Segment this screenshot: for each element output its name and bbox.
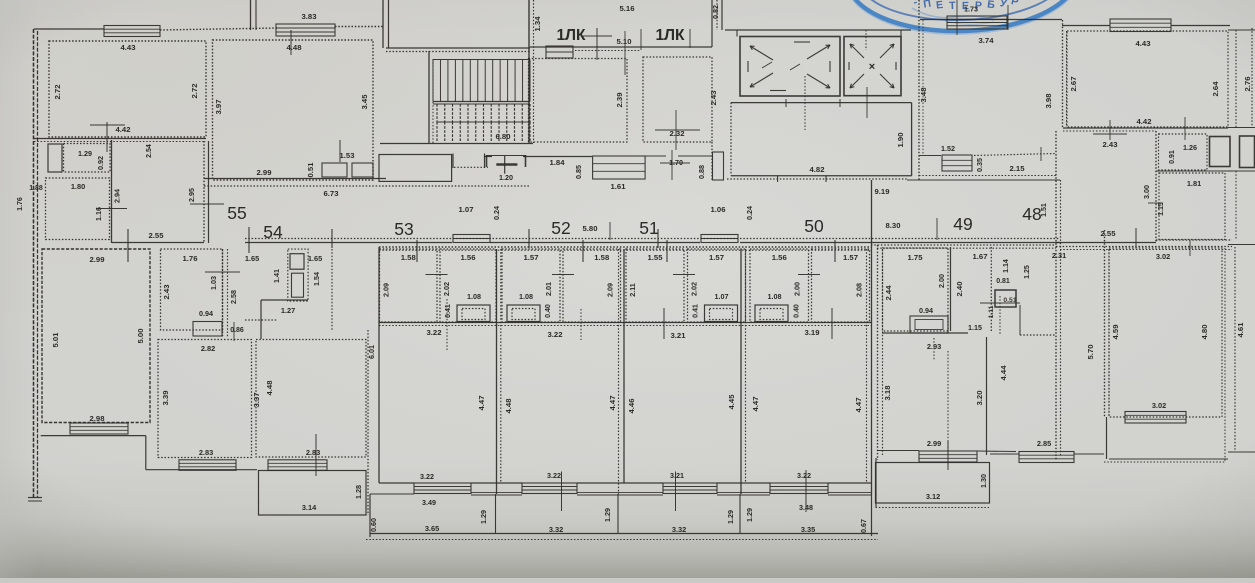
svg-text:1.54: 1.54 [312, 272, 321, 286]
svg-text:54: 54 [263, 222, 283, 242]
svg-text:3.65: 3.65 [425, 524, 439, 533]
svg-text:50: 50 [804, 216, 824, 236]
svg-text:0.81: 0.81 [996, 278, 1010, 285]
svg-text:2.76: 2.76 [1243, 77, 1252, 92]
svg-text:3.74: 3.74 [979, 36, 995, 45]
svg-text:2.39: 2.39 [615, 93, 624, 108]
svg-text:1.29: 1.29 [78, 149, 92, 158]
svg-text:2.99: 2.99 [927, 439, 941, 448]
svg-text:4.61: 4.61 [1236, 322, 1245, 338]
svg-text:1.81: 1.81 [1187, 179, 1201, 188]
svg-text:3.45: 3.45 [360, 94, 369, 110]
svg-text:6.01: 6.01 [367, 345, 376, 359]
svg-text:1.07: 1.07 [459, 205, 474, 214]
svg-text:0.88: 0.88 [697, 165, 706, 179]
svg-text:3.02: 3.02 [1152, 401, 1166, 410]
svg-text:2.99: 2.99 [257, 168, 272, 177]
svg-text:1.08: 1.08 [768, 292, 782, 301]
svg-text:2.85: 2.85 [1037, 439, 1051, 448]
svg-text:1.70: 1.70 [669, 158, 683, 167]
svg-text:2.54: 2.54 [146, 144, 153, 158]
svg-text:2.94: 2.94 [113, 189, 122, 203]
svg-text:1.52: 1.52 [941, 144, 955, 153]
svg-text:1.53: 1.53 [340, 151, 355, 160]
svg-text:6.73: 6.73 [324, 189, 339, 198]
svg-text:0.94: 0.94 [199, 309, 213, 318]
svg-text:2.55: 2.55 [149, 231, 165, 240]
svg-text:1.76: 1.76 [17, 197, 24, 211]
svg-text:2.08: 2.08 [855, 283, 864, 297]
svg-text:3.02: 3.02 [1156, 252, 1170, 261]
svg-text:2.09: 2.09 [382, 283, 391, 297]
svg-text:1.11: 1.11 [988, 305, 995, 318]
svg-text:1.65: 1.65 [308, 254, 322, 263]
svg-text:3.37: 3.37 [252, 393, 261, 408]
svg-text:2.82: 2.82 [201, 344, 215, 353]
svg-text:0.82: 0.82 [711, 5, 720, 19]
svg-text:0.24: 0.24 [492, 206, 501, 220]
svg-text:1.29: 1.29 [745, 508, 754, 522]
svg-text:1.03: 1.03 [209, 276, 218, 290]
svg-text:1.73: 1.73 [964, 5, 978, 14]
svg-text:0.60: 0.60 [369, 518, 378, 532]
svg-text:2.93: 2.93 [927, 342, 941, 351]
svg-text:4.82: 4.82 [810, 165, 825, 174]
svg-text:4.42: 4.42 [116, 125, 131, 134]
svg-text:1.84: 1.84 [550, 158, 566, 167]
svg-text:49: 49 [953, 214, 972, 234]
svg-text:52: 52 [551, 218, 570, 238]
svg-text:2.72: 2.72 [53, 85, 62, 100]
svg-text:5.16: 5.16 [620, 4, 635, 13]
svg-text:5.00: 5.00 [136, 329, 145, 344]
svg-text:8.30: 8.30 [886, 221, 901, 230]
svg-text:3.22: 3.22 [420, 472, 434, 481]
svg-text:51: 51 [639, 218, 658, 238]
svg-text:2.83: 2.83 [199, 448, 213, 457]
svg-text:1.14: 1.14 [1003, 259, 1010, 273]
svg-text:0.92: 0.92 [96, 156, 105, 170]
svg-text:1.57: 1.57 [709, 253, 724, 262]
svg-text:1.51: 1.51 [1041, 203, 1048, 217]
svg-text:53: 53 [394, 219, 413, 239]
svg-text:3.49: 3.49 [422, 498, 436, 507]
svg-text:0.85: 0.85 [574, 165, 583, 179]
svg-text:1.75: 1.75 [908, 253, 924, 262]
svg-text:3.35: 3.35 [801, 525, 815, 534]
svg-text:4.47: 4.47 [608, 396, 617, 411]
svg-text:1.15: 1.15 [1158, 202, 1165, 216]
svg-text:3.22: 3.22 [547, 471, 561, 480]
svg-text:1.08: 1.08 [519, 292, 533, 301]
svg-text:2.64: 2.64 [1211, 81, 1220, 97]
svg-text:4.48: 4.48 [265, 380, 274, 396]
svg-text:0.41: 0.41 [693, 304, 700, 318]
svg-text:1.88: 1.88 [29, 185, 43, 192]
svg-text:3.19: 3.19 [805, 328, 820, 337]
svg-text:1.28: 1.28 [354, 485, 363, 499]
svg-text:1.61: 1.61 [611, 182, 627, 191]
svg-text:2.01: 2.01 [544, 282, 553, 296]
svg-text:0.40: 0.40 [545, 304, 552, 318]
svg-text:2.95: 2.95 [187, 188, 196, 202]
svg-text:1.08: 1.08 [467, 292, 481, 301]
svg-text:1.57: 1.57 [524, 253, 539, 262]
svg-text:3.32: 3.32 [549, 525, 563, 534]
svg-text:4.47: 4.47 [751, 397, 760, 412]
svg-text:4.47: 4.47 [854, 398, 863, 413]
svg-text:4.42: 4.42 [1137, 117, 1152, 126]
svg-text:1.27: 1.27 [281, 306, 295, 315]
svg-text:3.18: 3.18 [883, 385, 892, 401]
svg-text:0.35: 0.35 [975, 158, 984, 172]
svg-text:2.44: 2.44 [884, 285, 893, 301]
svg-text:3.48: 3.48 [919, 87, 928, 103]
svg-text:1.07: 1.07 [715, 292, 729, 301]
svg-text:4.46: 4.46 [627, 399, 636, 414]
svg-text:1.56: 1.56 [772, 253, 787, 262]
svg-text:3.14: 3.14 [302, 503, 317, 512]
svg-text:1.90: 1.90 [896, 133, 905, 148]
svg-text:3.97: 3.97 [214, 100, 223, 115]
svg-text:3.12: 3.12 [926, 492, 940, 501]
svg-text:3.22: 3.22 [548, 330, 563, 339]
svg-text:2.02: 2.02 [690, 282, 699, 296]
svg-text:П: П [922, 0, 931, 11]
svg-text:4.44: 4.44 [999, 365, 1008, 381]
svg-text:1.29: 1.29 [603, 508, 612, 522]
svg-text:4.48: 4.48 [287, 43, 303, 52]
svg-text:×: × [869, 61, 875, 73]
svg-text:4.48: 4.48 [504, 398, 513, 414]
svg-text:3.83: 3.83 [302, 12, 317, 21]
svg-text:3.21: 3.21 [670, 471, 684, 480]
svg-text:1.06: 1.06 [711, 205, 726, 214]
svg-text:1.41: 1.41 [272, 269, 281, 283]
svg-text:5.80: 5.80 [583, 224, 598, 233]
svg-text:1.57: 1.57 [843, 253, 858, 262]
svg-text:Е: Е [935, 0, 943, 12]
svg-text:0.86: 0.86 [230, 327, 244, 334]
svg-text:3.32: 3.32 [672, 525, 686, 534]
svg-text:3.21: 3.21 [671, 331, 687, 340]
svg-text:2.31: 2.31 [1052, 251, 1066, 260]
svg-text:1.29: 1.29 [726, 510, 735, 524]
svg-text:1.15: 1.15 [968, 323, 982, 332]
svg-text:2.40: 2.40 [955, 282, 964, 297]
svg-text:4.45: 4.45 [727, 394, 736, 410]
svg-text:5.70: 5.70 [1086, 345, 1095, 360]
svg-text:1.29: 1.29 [479, 510, 488, 524]
svg-text:0.51: 0.51 [306, 162, 315, 178]
svg-text:1.76: 1.76 [183, 254, 198, 263]
svg-text:1.56: 1.56 [461, 253, 476, 262]
svg-text:1.16: 1.16 [94, 207, 103, 221]
svg-text:0.41: 0.41 [445, 304, 452, 318]
svg-text:2.67: 2.67 [1069, 77, 1078, 92]
svg-text:2.58: 2.58 [229, 290, 238, 304]
svg-text:5.01: 5.01 [51, 332, 60, 348]
svg-text:2.99: 2.99 [90, 255, 105, 264]
svg-text:1.58: 1.58 [594, 253, 610, 262]
svg-text:4.47: 4.47 [477, 396, 486, 411]
svg-text:3.22: 3.22 [797, 471, 811, 480]
svg-text:2.00: 2.00 [793, 282, 802, 296]
svg-text:1.65: 1.65 [245, 254, 259, 263]
svg-text:2.02: 2.02 [442, 282, 451, 296]
svg-text:0.91: 0.91 [1169, 150, 1176, 164]
svg-text:6.80: 6.80 [496, 132, 511, 141]
svg-text:1.67: 1.67 [973, 252, 988, 261]
svg-text:1ЛК: 1ЛК [557, 27, 586, 44]
svg-text:1ЛК: 1ЛК [656, 27, 685, 44]
svg-text:0.24: 0.24 [745, 206, 754, 220]
svg-text:5.10: 5.10 [617, 37, 632, 46]
svg-text:9.19: 9.19 [875, 187, 890, 196]
svg-text:0.67: 0.67 [859, 519, 868, 533]
svg-text:Т: Т [949, 0, 957, 12]
svg-text:3.48: 3.48 [799, 503, 813, 512]
svg-text:1.34: 1.34 [533, 16, 542, 32]
svg-text:1.25: 1.25 [1024, 265, 1031, 279]
svg-text:3.39: 3.39 [161, 391, 170, 406]
svg-text:2.43: 2.43 [709, 91, 718, 106]
svg-text:4.43: 4.43 [1136, 39, 1151, 48]
svg-text:1.80: 1.80 [71, 182, 85, 191]
svg-text:4.43: 4.43 [121, 43, 136, 52]
svg-text:3.00: 3.00 [1142, 185, 1151, 199]
svg-text:0.40: 0.40 [794, 304, 801, 318]
svg-text:2.00: 2.00 [937, 274, 946, 288]
svg-text:1.58: 1.58 [401, 253, 417, 262]
svg-text:2.43: 2.43 [162, 285, 171, 300]
svg-text:3.20: 3.20 [975, 391, 984, 406]
svg-text:3.22: 3.22 [427, 328, 442, 337]
svg-text:2.11: 2.11 [628, 283, 637, 297]
svg-text:1.20: 1.20 [499, 173, 513, 182]
svg-text:3.98: 3.98 [1044, 93, 1053, 109]
svg-text:1.55: 1.55 [648, 253, 664, 262]
svg-text:48: 48 [1022, 204, 1041, 224]
svg-text:55: 55 [227, 203, 246, 223]
svg-text:4.80: 4.80 [1200, 325, 1209, 340]
svg-text:2.55: 2.55 [1101, 229, 1117, 238]
svg-text:0.94: 0.94 [919, 306, 933, 315]
svg-text:2.98: 2.98 [90, 414, 106, 423]
svg-text:1.30: 1.30 [979, 474, 988, 488]
svg-text:4.59: 4.59 [1111, 325, 1120, 340]
svg-text:2.15: 2.15 [1010, 164, 1026, 173]
svg-text:2.72: 2.72 [190, 84, 199, 99]
svg-text:2.09: 2.09 [606, 283, 615, 297]
svg-text:2.83: 2.83 [306, 448, 320, 457]
svg-text:2.43: 2.43 [1103, 140, 1118, 149]
svg-text:1.26: 1.26 [1183, 143, 1197, 152]
